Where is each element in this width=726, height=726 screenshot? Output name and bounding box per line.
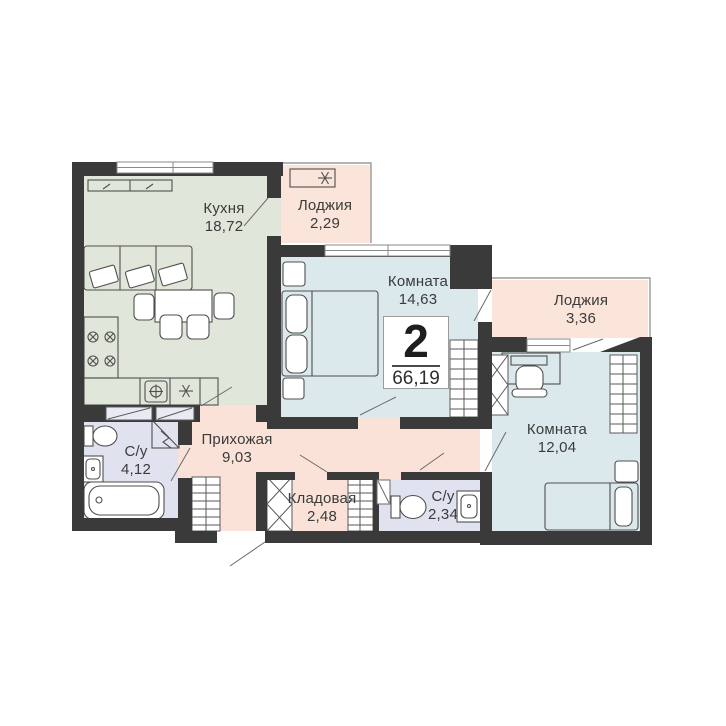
diagonal-wall [600, 337, 652, 352]
room-label-bathroom2: С/у 2,34 [428, 488, 458, 524]
total-area-value: 66,19 [384, 369, 448, 389]
wardrobe-room2-right [610, 355, 637, 433]
room-name: С/у [121, 443, 151, 461]
room-name: Прихожая [201, 431, 272, 449]
room-area: 9,03 [201, 449, 272, 467]
room-label-room1: Комната 14,63 [388, 273, 448, 309]
room-label-loggia2: Лоджия 3,36 [554, 292, 608, 328]
duct-cabinets [106, 407, 194, 420]
room-name: Лоджия [298, 197, 352, 215]
wardrobe-room1 [450, 340, 478, 417]
room-area: 12,04 [527, 439, 587, 457]
toilet-bathroom1 [84, 426, 117, 446]
rooms-count: 2 [384, 318, 448, 365]
room-name: Комната [388, 273, 448, 291]
room-area: 14,63 [388, 291, 448, 309]
window-room1 [325, 245, 450, 256]
room-label-storage: Кладовая 2,48 [288, 490, 357, 526]
room-label-loggia1: Лоджия 2,29 [298, 197, 352, 233]
room-name: С/у [428, 488, 458, 506]
entrance-door [230, 542, 265, 566]
floor-plan-canvas [0, 0, 726, 726]
wardrobe-hall [192, 477, 220, 531]
total-area-badge: 2 66,19 [383, 316, 449, 389]
room-label-hallway: Прихожая 9,03 [201, 431, 272, 467]
window-room2 [527, 339, 570, 352]
room-name: Кухня [203, 200, 244, 218]
sink-bathroom2 [457, 491, 481, 522]
room-area: 18,72 [203, 218, 244, 236]
room-label-room2: Комната 12,04 [527, 421, 587, 457]
room-area: 4,12 [121, 461, 151, 479]
window-kitchen [117, 162, 213, 173]
room-name: Комната [527, 421, 587, 439]
door-room2-loggia2 [573, 339, 603, 350]
floor-plan: Кухня 18,72 Лоджия 2,29 Комната 14,63 Ло… [0, 0, 726, 726]
room-label-kitchen: Кухня 18,72 [203, 200, 244, 236]
sink-bathroom1 [83, 456, 103, 482]
room-label-bathroom1: С/у 4,12 [121, 443, 151, 479]
room-name: Лоджия [554, 292, 608, 310]
room-name: Кладовая [288, 490, 357, 508]
room-area: 3,36 [554, 310, 608, 328]
bathtub [84, 482, 164, 519]
room-area: 2,34 [428, 506, 458, 524]
room-area: 2,48 [288, 508, 357, 526]
room-area: 2,29 [298, 215, 352, 233]
toilet-bathroom2 [391, 496, 426, 519]
